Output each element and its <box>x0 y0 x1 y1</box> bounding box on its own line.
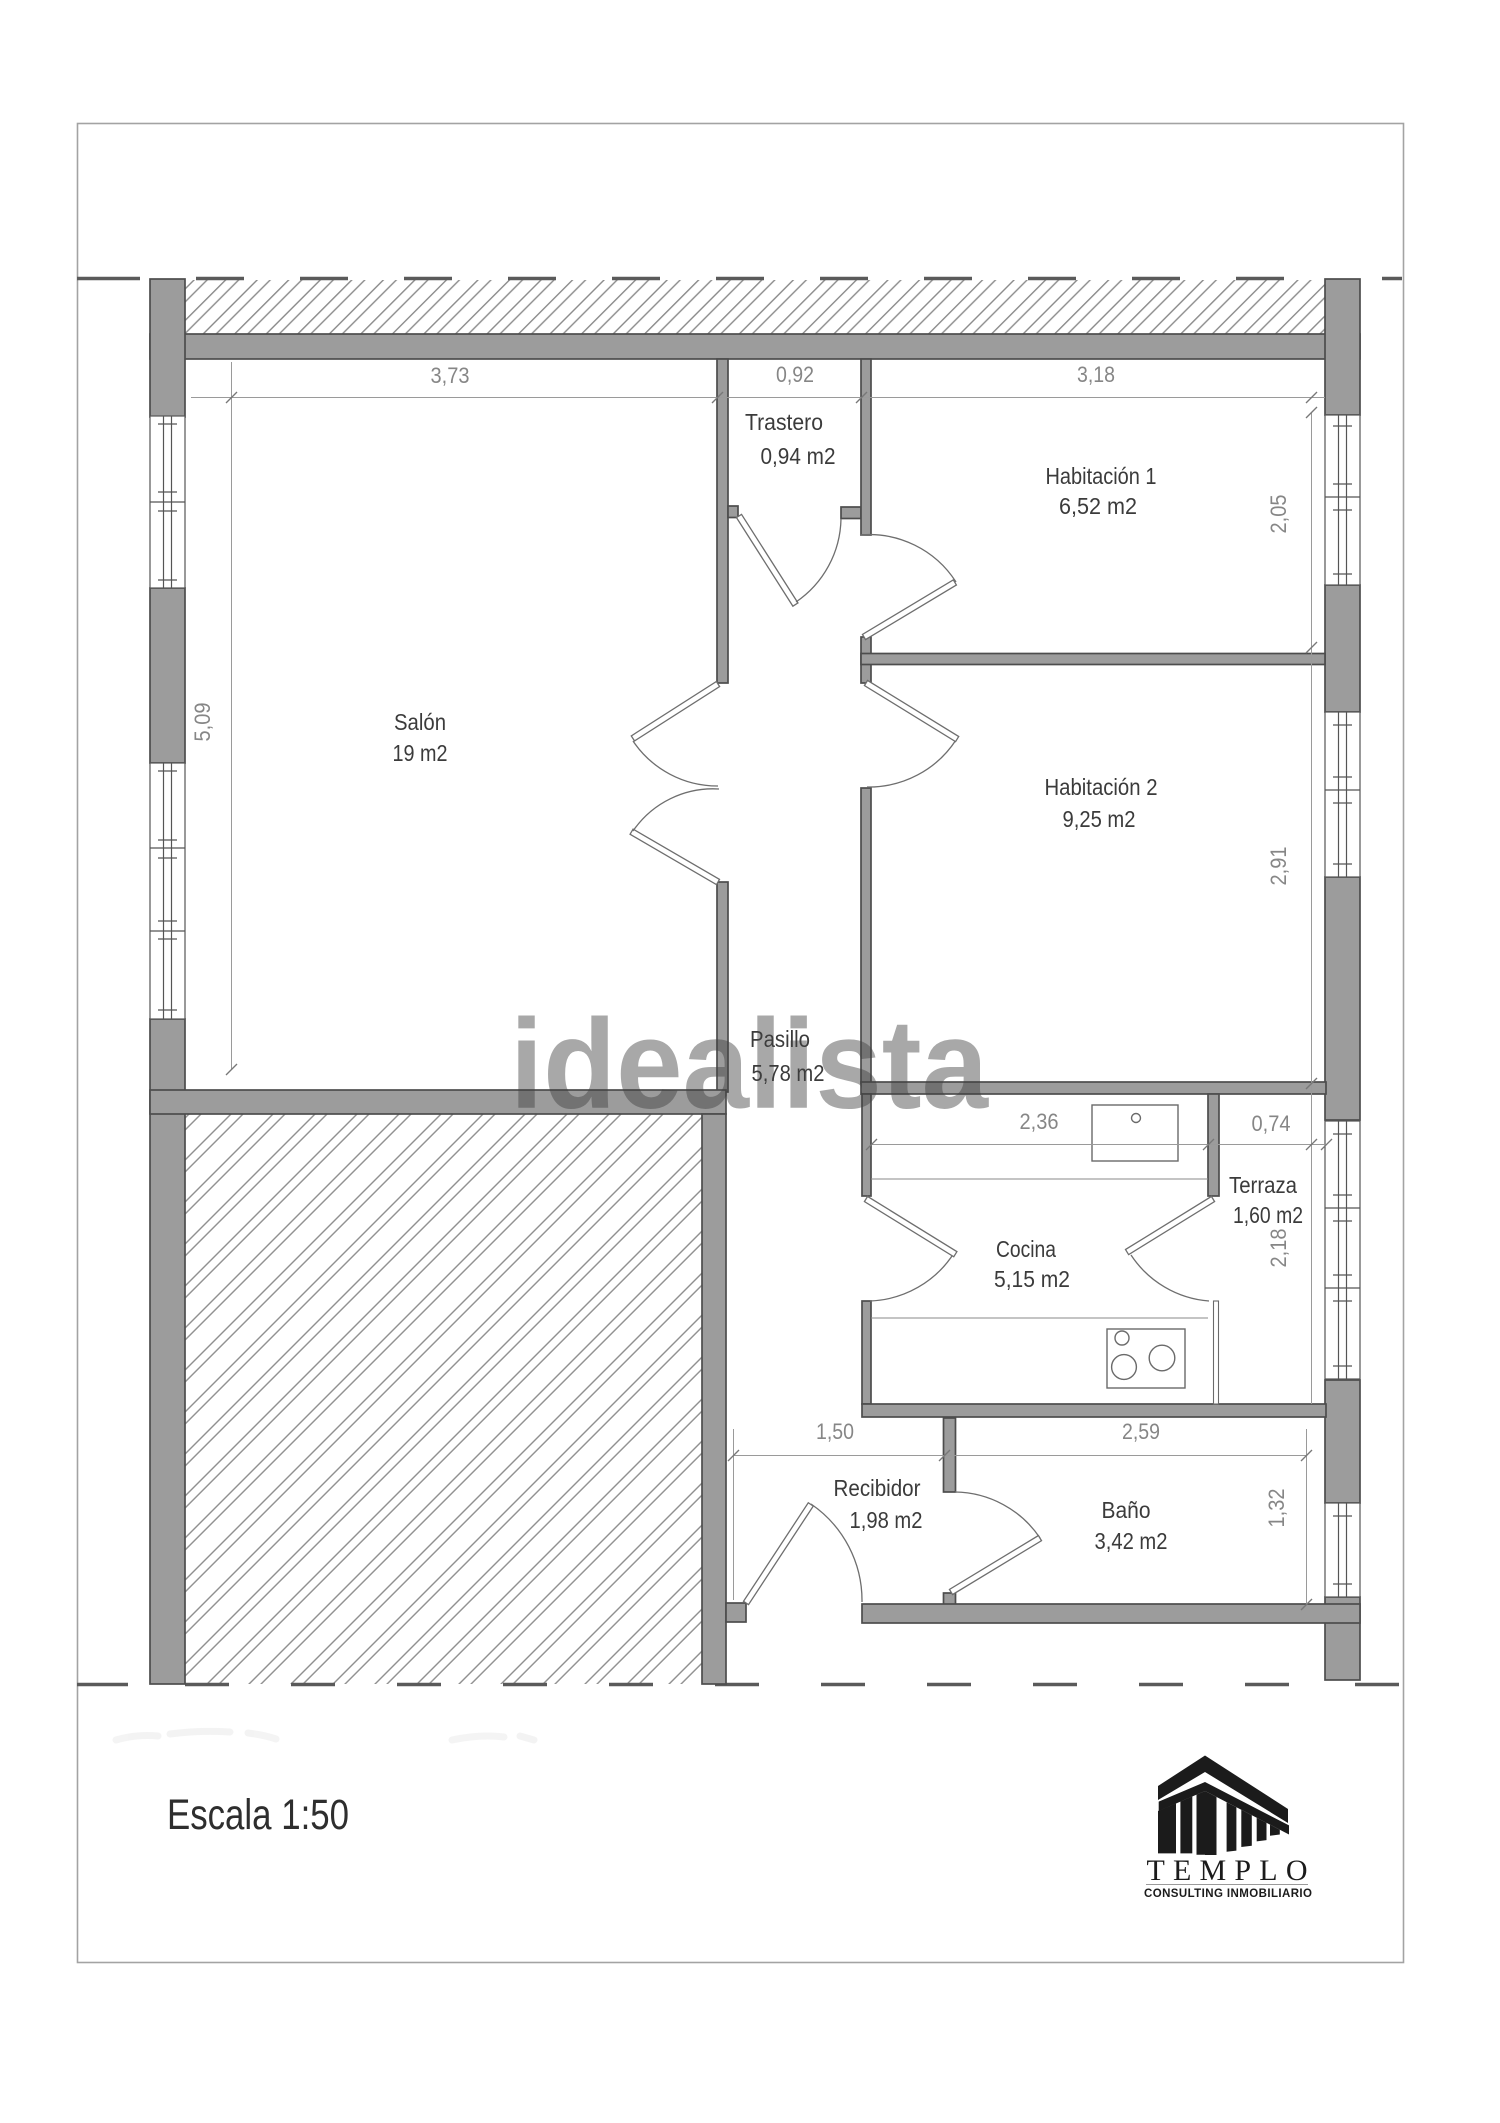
svg-text:2,36: 2,36 <box>1020 1109 1059 1134</box>
svg-text:3,73: 3,73 <box>431 363 470 388</box>
svg-text:0,92: 0,92 <box>776 362 814 387</box>
svg-text:2,91: 2,91 <box>1266 847 1291 886</box>
svg-text:Cocina: Cocina <box>996 1236 1056 1262</box>
svg-text:3,18: 3,18 <box>1077 362 1115 387</box>
svg-text:idealista: idealista <box>510 993 989 1135</box>
svg-text:2,59: 2,59 <box>1122 1419 1160 1444</box>
svg-text:1,50: 1,50 <box>816 1419 854 1444</box>
svg-text:0,74: 0,74 <box>1252 1111 1291 1136</box>
svg-text:Escala 1:50: Escala 1:50 <box>167 1791 349 1839</box>
svg-text:1,98 m2: 1,98 m2 <box>850 1507 923 1533</box>
svg-text:5,15 m2: 5,15 m2 <box>994 1266 1070 1292</box>
svg-text:19 m2: 19 m2 <box>393 740 448 766</box>
svg-text:Habitación 1: Habitación 1 <box>1046 463 1157 489</box>
svg-text:2,18: 2,18 <box>1266 1229 1291 1268</box>
svg-text:2,05: 2,05 <box>1266 495 1291 534</box>
svg-text:Baño: Baño <box>1102 1497 1151 1523</box>
svg-text:Terraza: Terraza <box>1229 1172 1297 1198</box>
svg-text:Trastero: Trastero <box>745 409 823 435</box>
svg-text:1,32: 1,32 <box>1264 1489 1289 1528</box>
svg-text:Salón: Salón <box>394 709 446 735</box>
svg-text:3,42 m2: 3,42 m2 <box>1095 1528 1168 1554</box>
svg-text:1,60 m2: 1,60 m2 <box>1233 1202 1303 1228</box>
svg-text:CONSULTING INMOBILIARIO: CONSULTING INMOBILIARIO <box>1144 1888 1312 1900</box>
svg-text:0,94 m2: 0,94 m2 <box>761 443 836 469</box>
svg-text:Recibidor: Recibidor <box>834 1475 921 1501</box>
svg-text:5,09: 5,09 <box>190 703 215 742</box>
svg-text:6,52 m2: 6,52 m2 <box>1059 493 1137 519</box>
svg-text:Habitación 2: Habitación 2 <box>1045 774 1158 800</box>
svg-text:9,25 m2: 9,25 m2 <box>1063 806 1136 832</box>
